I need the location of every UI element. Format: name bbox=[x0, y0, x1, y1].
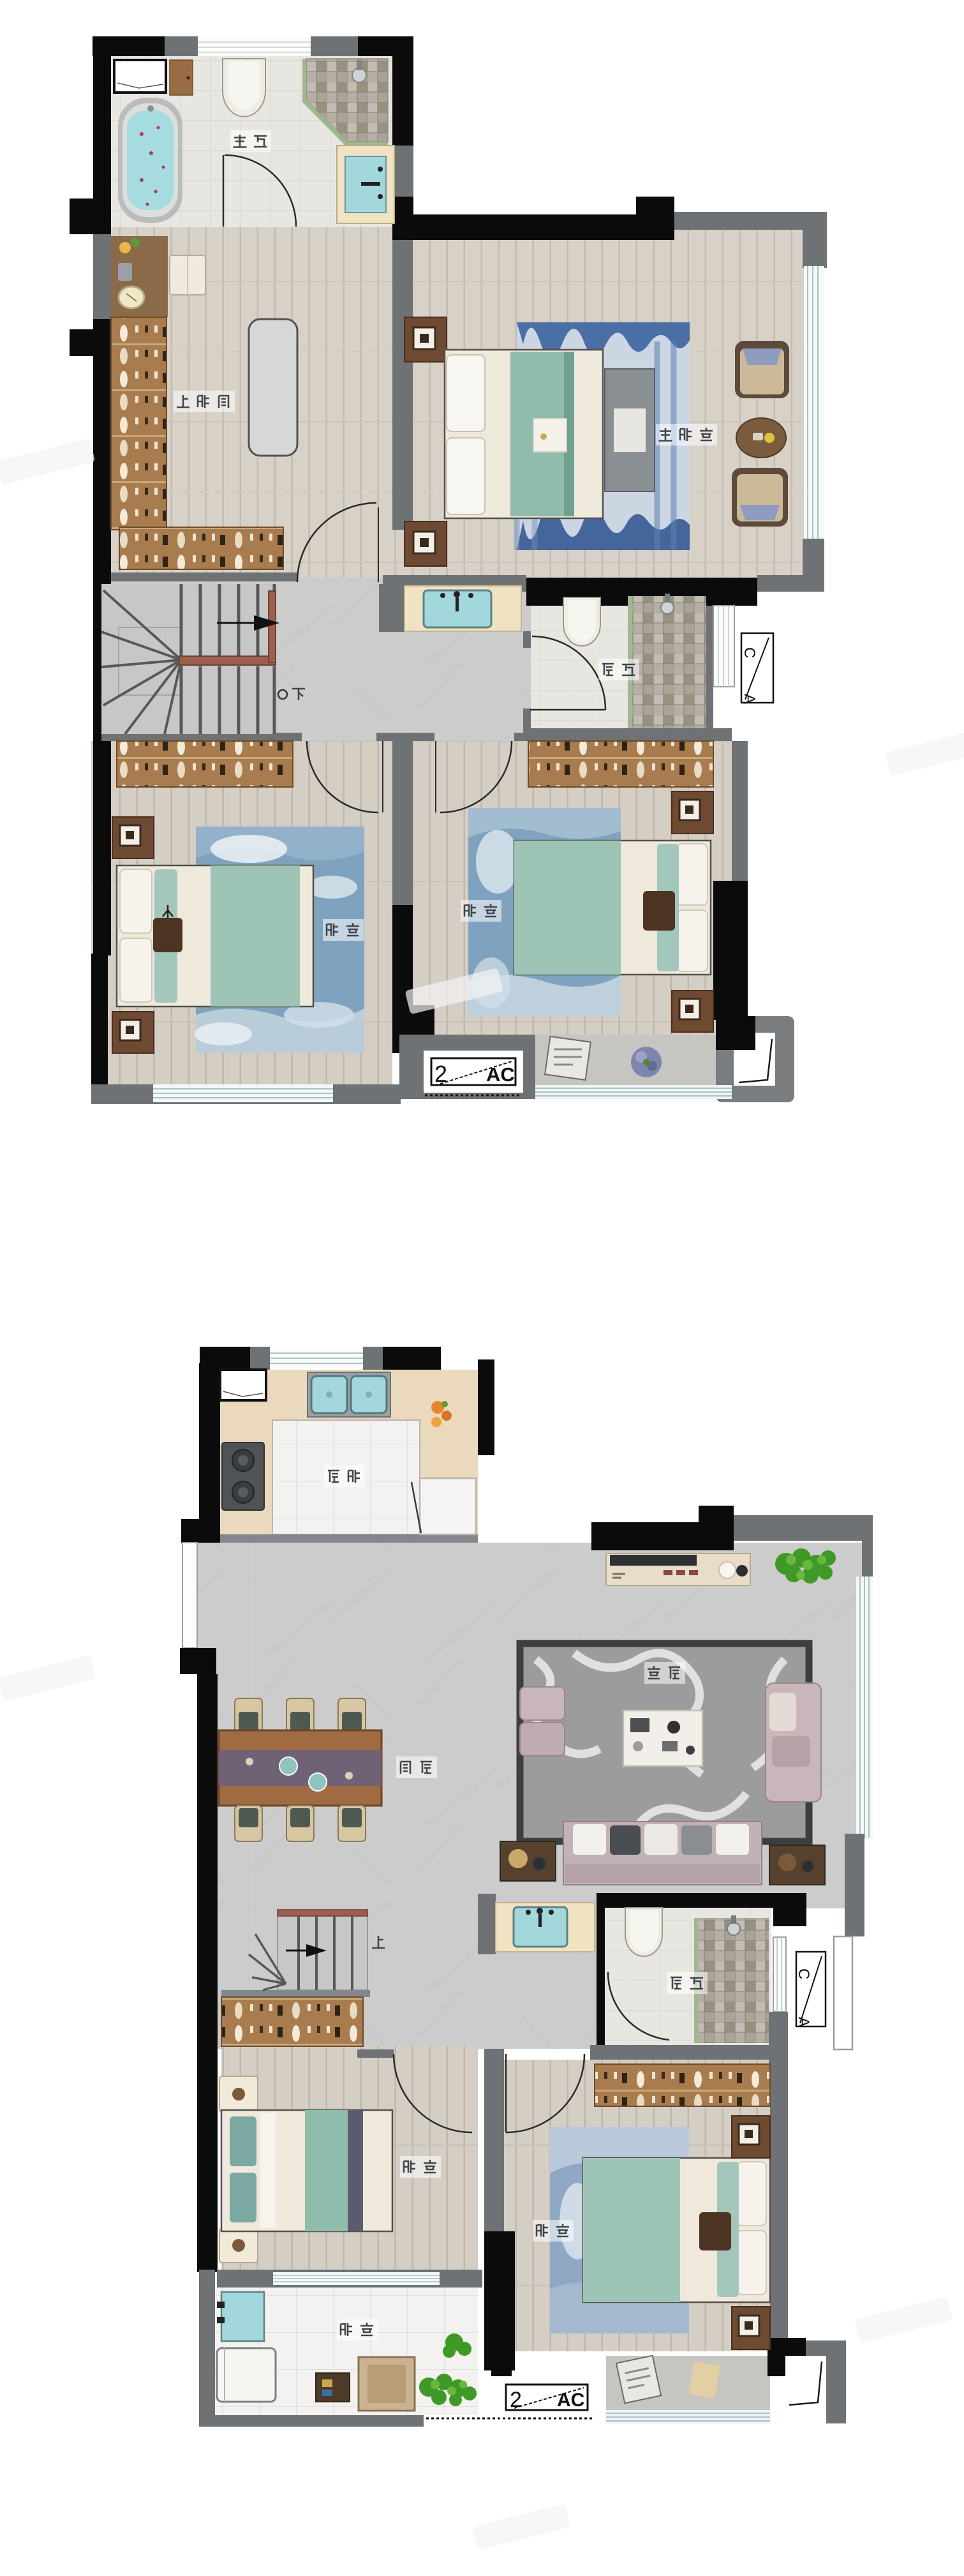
svg-text:A: A bbox=[795, 2017, 812, 2027]
svg-text:C: C bbox=[741, 647, 758, 658]
svg-text:AC: AC bbox=[486, 1063, 515, 1086]
svg-text:C: C bbox=[795, 1968, 812, 1979]
svg-text:A: A bbox=[741, 694, 758, 704]
svg-text:AC: AC bbox=[557, 2390, 584, 2411]
